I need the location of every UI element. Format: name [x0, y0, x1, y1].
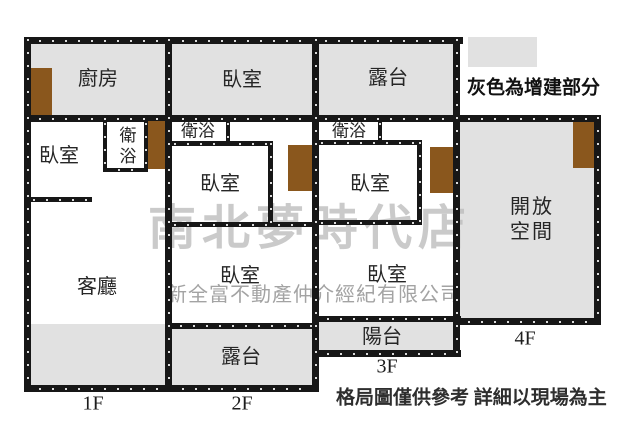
floor-label-2f: 2F: [231, 393, 252, 416]
wall-f4-bottom: [453, 318, 601, 325]
label-f1-bedroom: 臥室: [39, 146, 79, 166]
wall-f3-f4-boundary: [453, 37, 460, 357]
wall-f2-bedroom-divider: [172, 222, 312, 227]
label-f3-bath: 衛浴: [332, 123, 366, 140]
wall-f2-bedroom-mid-right: [268, 141, 273, 227]
label-f2-bedroom-top: 臥室: [222, 70, 262, 90]
wall-outer-left: [24, 37, 31, 392]
floor-label-3f: 3F: [376, 356, 397, 379]
wall-f2-bedroom-mid-top: [172, 141, 273, 146]
label-f1-living: 客廳: [77, 277, 117, 297]
label-f2-terrace: 露台: [221, 347, 261, 367]
door-f1-bath: [148, 121, 165, 169]
label-f4-open-space: 開放空間: [510, 195, 556, 245]
label-f2-bedroom-low: 臥室: [220, 266, 260, 286]
wall-f4-right: [594, 115, 601, 325]
wall-f3-bedroom-mid-right: [417, 140, 422, 225]
floor-label-4f: 4F: [514, 328, 535, 351]
wall-f3-bedroom-divider: [319, 220, 422, 225]
floor-plan: 南北夢時代店 新全富不動產仲介經紀有限公司 廚房 臥室 露台 臥室 衛浴 衛浴 …: [0, 0, 640, 434]
floor-label-1f: 1F: [82, 393, 103, 416]
wall-f1-bath-left: [103, 121, 107, 172]
wall-f3-balcony-top: [312, 316, 461, 322]
wall-f3-bedroom-mid-top: [319, 140, 422, 145]
wall-f1-f2-boundary: [165, 37, 172, 392]
label-f1-bath: 衛浴: [118, 126, 135, 168]
door-f4-open-space: [573, 122, 594, 168]
wall-f2-terrace-top: [165, 323, 319, 329]
label-f3-bedroom-low: 臥室: [367, 265, 407, 285]
door-f3-corridor: [430, 147, 453, 193]
wall-f3-bath-right: [378, 121, 382, 144]
legend-swatch: [468, 37, 537, 67]
label-f2-bath: 衛浴: [181, 123, 215, 140]
wall-f1-bath-bottom: [103, 168, 148, 172]
door-f2-corridor: [288, 145, 312, 191]
disclaimer-text: 格局圖僅供參考 詳細以現場為主: [336, 383, 607, 410]
room-fill-f1-extension: [31, 324, 165, 385]
wall-f2-f3-boundary: [312, 37, 319, 392]
label-f3-balcony: 陽台: [362, 327, 402, 347]
door-f1-kitchen: [31, 68, 52, 115]
label-f1-kitchen: 廚房: [78, 69, 118, 89]
wall-f2-bath-right: [226, 121, 230, 145]
label-f3-bedroom-mid: 臥室: [350, 174, 390, 194]
legend-label: 灰色為增建部分: [467, 73, 600, 100]
label-f2-bedroom-mid: 臥室: [200, 174, 240, 194]
label-f3-terrace: 露台: [368, 68, 408, 88]
wall-outer-top: [24, 37, 463, 44]
wall-f1-bedroom-bottom: [31, 197, 92, 202]
